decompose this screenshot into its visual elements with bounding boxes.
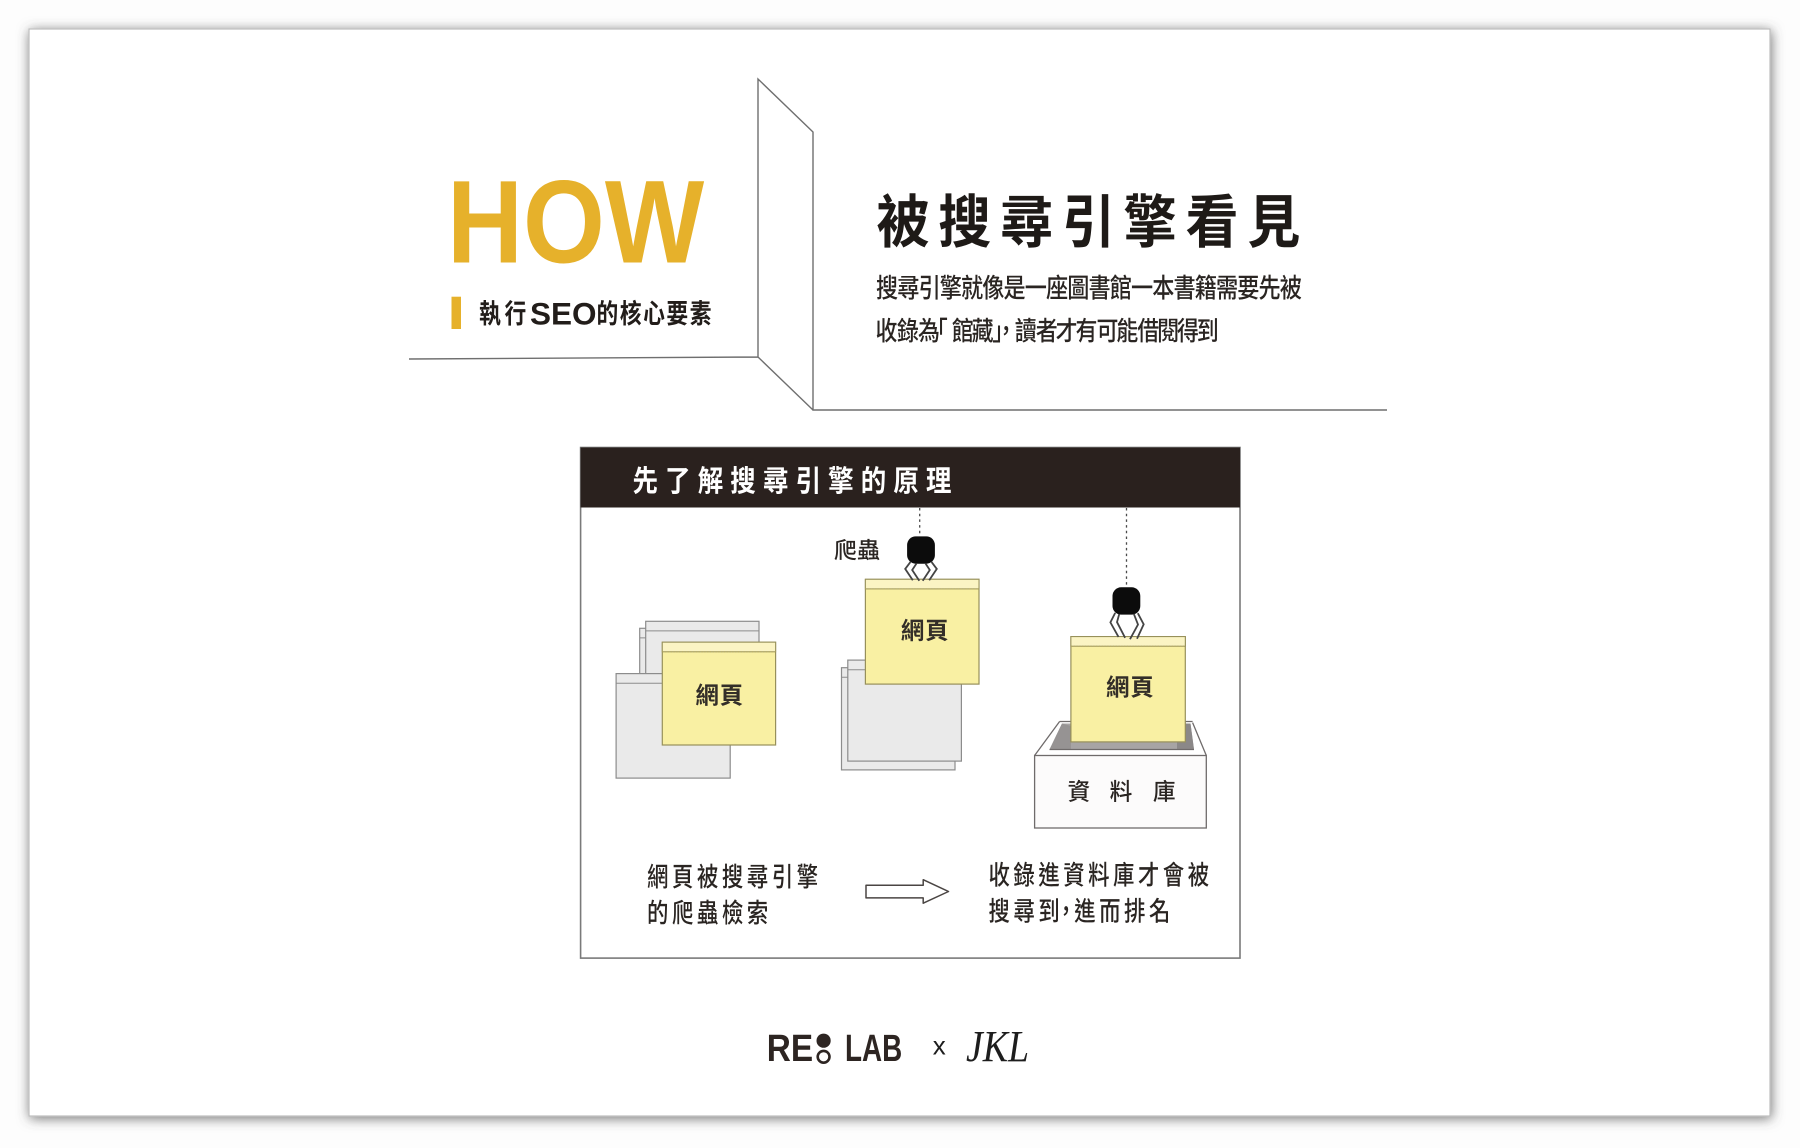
svg-text:JKL: JKL — [966, 1021, 1029, 1070]
svg-text:HOW: HOW — [447, 156, 705, 288]
svg-text:RE: RE — [767, 1027, 813, 1069]
svg-text:x: x — [933, 1030, 946, 1060]
svg-text:LAB: LAB — [845, 1028, 902, 1070]
svg-text:SEO: SEO — [530, 296, 597, 332]
